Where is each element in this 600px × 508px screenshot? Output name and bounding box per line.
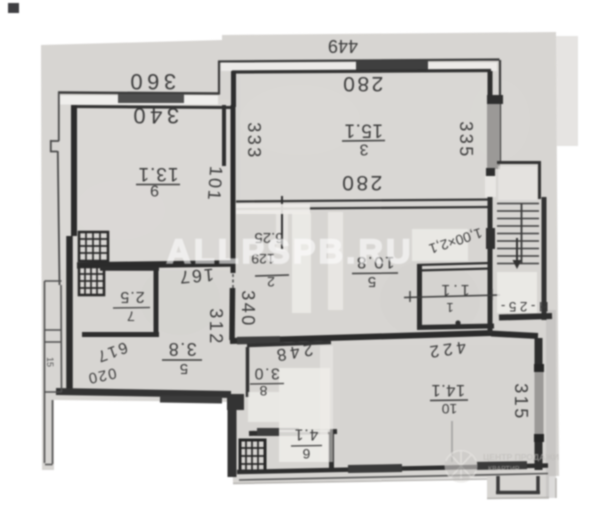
svg-text:8: 8 (259, 383, 267, 399)
svg-text:6: 6 (302, 446, 310, 462)
svg-text:312: 312 (206, 308, 226, 346)
svg-text:333: 333 (244, 122, 264, 160)
svg-text:5: 5 (180, 360, 188, 377)
svg-text:315: 315 (511, 383, 531, 421)
svg-text:2: 2 (267, 274, 275, 290)
svg-text:2.5: 2.5 (119, 288, 144, 305)
svg-text:360: 360 (126, 69, 176, 94)
svg-text:ALLPSPB.RU: ALLPSPB.RU (166, 233, 413, 271)
svg-text:335: 335 (456, 121, 476, 159)
svg-text:7: 7 (127, 309, 135, 325)
svg-text:1.1: 1.1 (438, 281, 469, 298)
svg-text:280: 280 (340, 171, 383, 194)
svg-text:340: 340 (238, 290, 258, 328)
svg-text:101: 101 (204, 165, 226, 202)
svg-text:449: 449 (328, 36, 358, 56)
svg-text:280: 280 (341, 72, 384, 95)
svg-text:ЦЕНТР ПРОДАЖИ: ЦЕНТР ПРОДАЖИ (483, 452, 559, 462)
svg-text:1: 1 (446, 300, 453, 315)
svg-text:9: 9 (150, 182, 159, 199)
svg-text:14.1: 14.1 (431, 381, 465, 399)
svg-text:3: 3 (359, 141, 368, 158)
svg-text:15: 15 (45, 357, 55, 367)
svg-text:3.0: 3.0 (253, 365, 280, 382)
svg-text:4.1: 4.1 (294, 426, 319, 443)
svg-text:340: 340 (129, 103, 179, 128)
svg-text:15.1: 15.1 (344, 120, 383, 141)
svg-text:3.8: 3.8 (167, 339, 197, 359)
svg-text:КВАРТИР: КВАРТИР (488, 466, 520, 473)
svg-text:H-25-: H-25- (497, 299, 548, 314)
svg-text:13.1: 13.1 (138, 163, 179, 184)
svg-text:10: 10 (442, 401, 458, 417)
svg-text:5: 5 (368, 273, 376, 290)
